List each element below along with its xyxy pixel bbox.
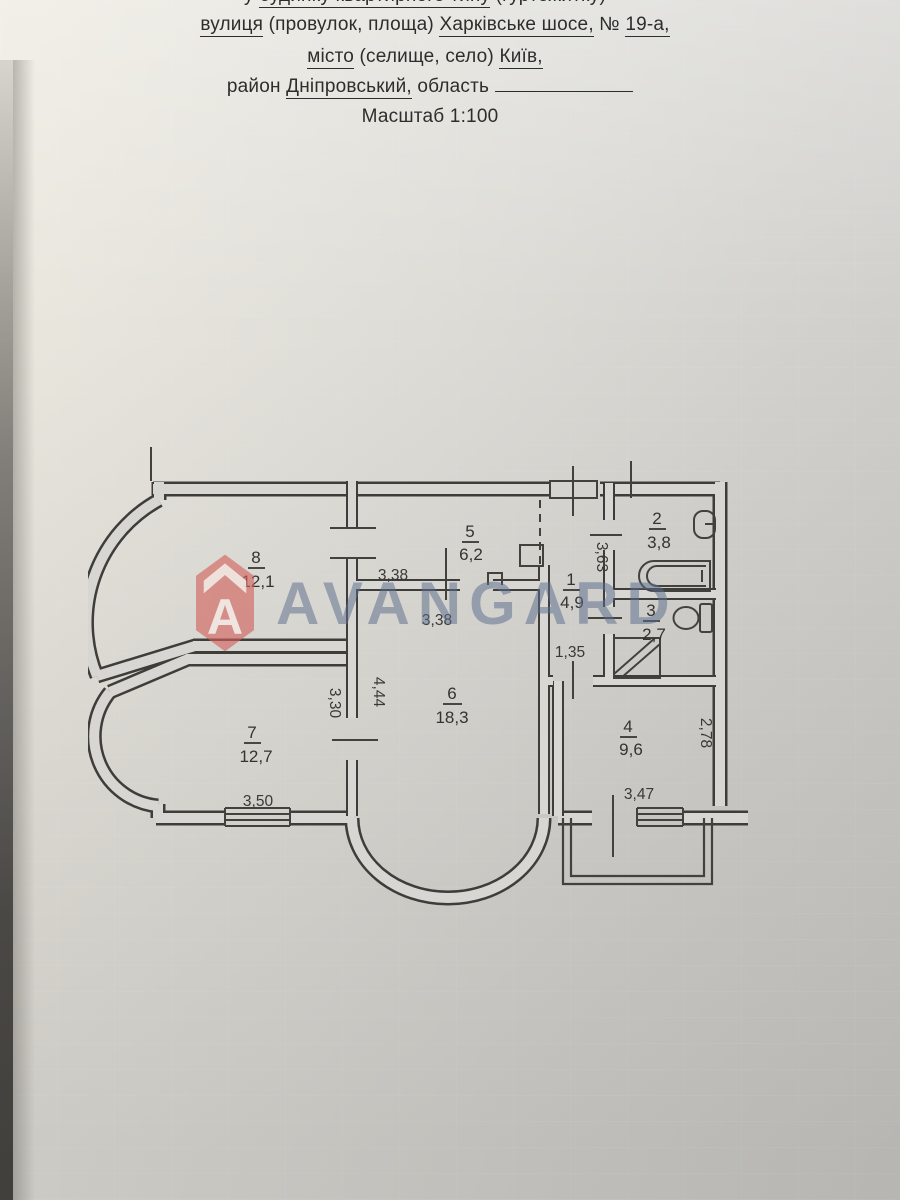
room7-number: 7 xyxy=(247,723,256,742)
room-label-8: 8 12,1 xyxy=(241,548,274,591)
dim-room7-right: 3,30 xyxy=(326,688,343,719)
dim-hall-width: 1,35 xyxy=(555,644,585,661)
header-line1-suffix: (гуртожитку) xyxy=(490,0,606,6)
room4-area: 9,6 xyxy=(619,740,643,759)
floor-plan: 3,38 3,38 3,63 1,35 4,44 3,30 3,50 2,78 … xyxy=(88,440,760,920)
room3-area: 2,7 xyxy=(642,625,666,644)
door-opening-ticks xyxy=(330,461,631,857)
window-room7 xyxy=(225,808,290,826)
dim-room4-width: 3,47 xyxy=(624,786,654,803)
house-number: 19-а, xyxy=(625,14,669,37)
room2-number: 2 xyxy=(652,509,661,528)
dim-hall-length: 3,63 xyxy=(593,542,610,572)
room8-area: 12,1 xyxy=(241,572,274,591)
blank-underline xyxy=(495,76,633,92)
room5-area: 6,2 xyxy=(459,545,483,564)
scanned-tech-passport-page: { "header": { "line1_prefix": "у ", "lin… xyxy=(0,0,900,1200)
room7-area: 12,7 xyxy=(239,747,272,766)
street-label: вулиця xyxy=(200,14,263,37)
room1-area: 4,9 xyxy=(560,593,584,612)
vent-shaft-hatch xyxy=(614,638,660,678)
room4-number: 4 xyxy=(623,717,632,736)
bathtub-icon xyxy=(639,561,710,591)
room3-number: 3 xyxy=(646,601,655,620)
room1-number: 1 xyxy=(566,570,575,589)
room5-number: 5 xyxy=(465,522,474,541)
room-label-2: 2 3,8 xyxy=(647,509,671,552)
street-mid: (провулок, площа) xyxy=(263,14,439,35)
dim-kitchen-width: 3,38 xyxy=(378,567,408,584)
room-label-1: 1 4,9 xyxy=(560,570,584,612)
interior-walls xyxy=(352,481,716,816)
dim-room6-width: 3,38 xyxy=(422,612,452,629)
room-label-7: 7 12,7 xyxy=(239,723,272,766)
room-label-4: 4 9,6 xyxy=(619,717,643,759)
city-value: Київ, xyxy=(499,46,542,69)
scale-label: Масштаб 1:100 xyxy=(355,106,505,128)
page-left-edge-shadow xyxy=(0,60,13,1200)
room8-number: 8 xyxy=(251,548,260,567)
district-label: район xyxy=(227,76,286,97)
header-line-city: місто (селище, село) Київ, xyxy=(285,46,565,68)
city-mid: (селище, село) xyxy=(354,46,499,67)
room6-number: 6 xyxy=(447,684,456,703)
header-line-building-type: у будинку квартирного типу (гуртожитку) xyxy=(215,0,635,7)
header-line1-prefix: у xyxy=(244,0,259,6)
oblast-label: область xyxy=(412,76,489,97)
dim-room4-depth: 2,78 xyxy=(697,718,714,748)
page-left-edge-fade xyxy=(13,60,35,1200)
room2-area: 3,8 xyxy=(647,533,671,552)
district-value: Дніпровський, xyxy=(286,76,412,99)
header-line-street: вулиця (провулок, площа) Харківське шосе… xyxy=(190,14,680,36)
window-room4 xyxy=(637,808,683,826)
room-label-3: 3 2,7 xyxy=(642,601,666,644)
number-sign: № xyxy=(594,14,626,35)
balcony-outline xyxy=(563,818,712,884)
toilet-icon xyxy=(674,604,713,632)
room6-area: 18,3 xyxy=(435,708,468,727)
street-value: Харківське шосе, xyxy=(439,14,593,37)
room-label-6: 6 18,3 xyxy=(435,684,468,727)
room-label-5: 5 6,2 xyxy=(459,522,483,564)
dim-room7-width: 3,50 xyxy=(243,793,274,810)
dim-room6-left: 4,44 xyxy=(370,677,387,708)
city-label: місто xyxy=(307,46,354,69)
header-line1-value: будинку квартирного типу xyxy=(259,0,490,8)
sink-icon xyxy=(694,511,715,538)
header-line-district: район Дніпровський, область xyxy=(215,76,645,98)
